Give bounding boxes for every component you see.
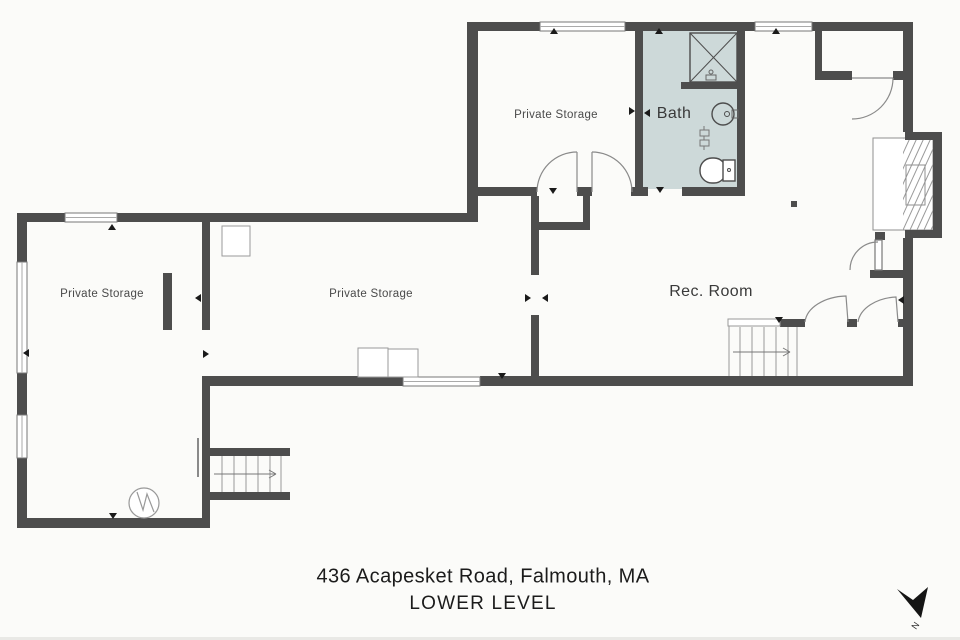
plan-address: 436 Acapesket Road, Falmouth, MA: [317, 566, 650, 589]
appliance-box: [388, 349, 418, 377]
window: [17, 415, 27, 458]
door-swing: [592, 152, 632, 192]
room-label-rec-room: Rec. Room: [669, 283, 753, 301]
door-swing: [852, 78, 893, 119]
north-label: N: [909, 620, 921, 631]
floor-plan: N Private Storage Bath Private Storage P…: [0, 0, 960, 640]
door-swing: [537, 152, 577, 192]
water-heater: [129, 488, 159, 518]
north-arrow: N: [897, 587, 928, 631]
utility-boxes: [222, 226, 418, 377]
room-label-private-storage-upper: Private Storage: [514, 109, 598, 121]
doors: [198, 78, 898, 477]
window: [540, 22, 625, 31]
fireplace: [861, 138, 960, 230]
floor-plan-drawing: N: [0, 0, 960, 640]
toilet: [700, 158, 735, 183]
staircase-rec-room: [728, 319, 797, 376]
north-arrow-glyph: [897, 587, 928, 618]
window: [65, 213, 117, 222]
room-label-private-storage-left: Private Storage: [60, 288, 144, 300]
window: [755, 22, 812, 31]
support-post: [791, 201, 797, 207]
window: [403, 377, 480, 386]
appliance-box: [358, 348, 388, 377]
door-swing: [805, 296, 848, 322]
opening-markers: [23, 28, 904, 519]
plan-level: LOWER LEVEL: [409, 593, 556, 615]
door-swing: [858, 297, 898, 322]
partial-wall: [163, 273, 172, 330]
window: [17, 262, 27, 373]
stair-direction-arrow: [733, 348, 790, 356]
shower-faucet: [706, 75, 716, 80]
utility-box: [222, 226, 250, 256]
staircase-bulkhead: [214, 456, 281, 492]
walls: [17, 22, 942, 528]
stair-direction-arrow: [214, 470, 276, 478]
door-swing: [850, 240, 882, 270]
room-label-private-storage-middle: Private Storage: [329, 288, 413, 300]
room-label-bath: Bath: [657, 105, 692, 123]
